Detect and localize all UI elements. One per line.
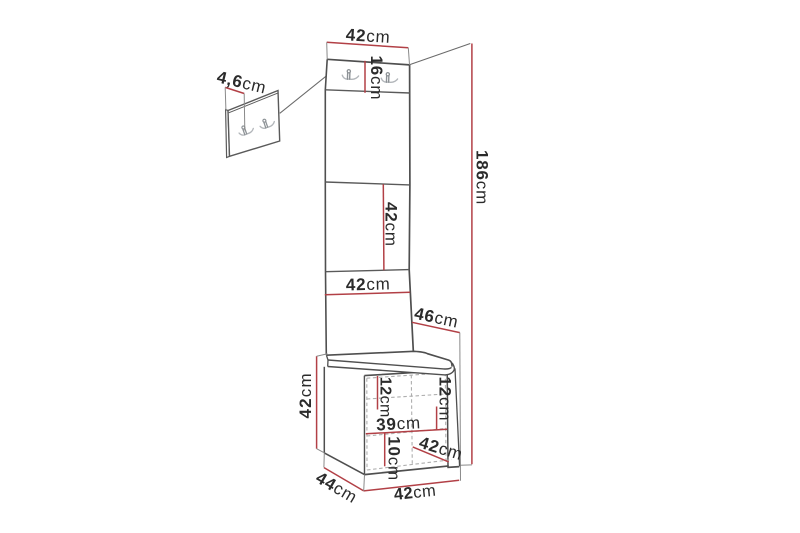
- svg-text:10cm: 10cm: [385, 436, 404, 481]
- svg-text:12cm: 12cm: [436, 377, 455, 422]
- svg-text:12cm: 12cm: [377, 377, 394, 418]
- svg-text:42cm: 42cm: [382, 202, 401, 247]
- svg-text:16cm: 16cm: [367, 56, 386, 101]
- svg-text:39cm: 39cm: [376, 413, 422, 434]
- svg-text:42cm: 42cm: [346, 274, 391, 294]
- svg-text:186cm: 186cm: [473, 150, 492, 205]
- svg-text:42cm: 42cm: [296, 372, 315, 418]
- svg-text:42cm: 42cm: [345, 25, 391, 47]
